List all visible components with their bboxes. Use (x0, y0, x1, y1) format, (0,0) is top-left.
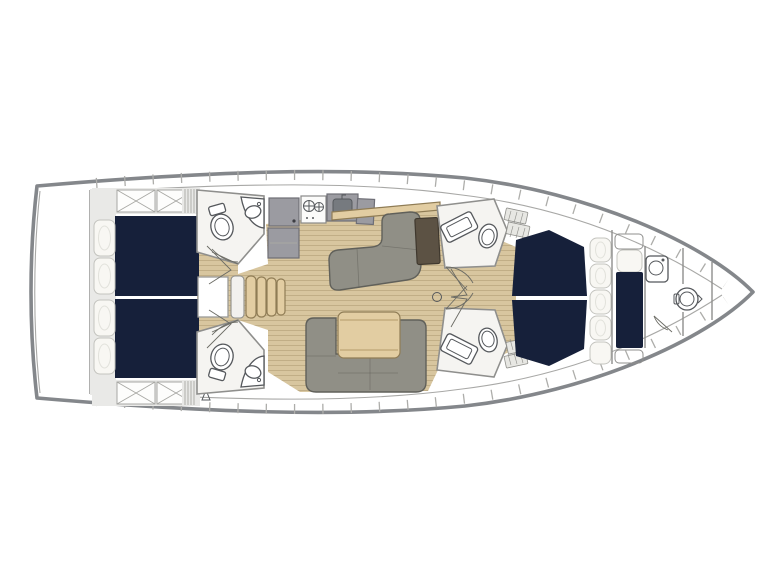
salon-table (338, 312, 400, 358)
center-panel (198, 277, 228, 317)
pillow (617, 250, 642, 272)
pillow (94, 220, 115, 256)
step-tread (277, 279, 285, 315)
faucet-icon (662, 259, 665, 262)
pillow (94, 258, 115, 294)
chart-table (415, 217, 440, 264)
pillow (94, 338, 115, 374)
double-berth (115, 216, 199, 296)
stove-knob (312, 217, 314, 219)
double-berth (115, 299, 199, 378)
pillow (94, 300, 115, 336)
boat-layout-plan (0, 0, 768, 576)
bow-cabin (615, 234, 645, 363)
step-tread (257, 277, 266, 317)
step-landing (231, 276, 244, 318)
floorplan-canvas (0, 0, 768, 576)
step-tread (267, 278, 276, 316)
fridge-handle (292, 219, 295, 222)
berth-cushion (590, 342, 611, 364)
step-tread (246, 276, 256, 318)
stove-knob (306, 217, 308, 219)
single-berth (616, 272, 643, 348)
